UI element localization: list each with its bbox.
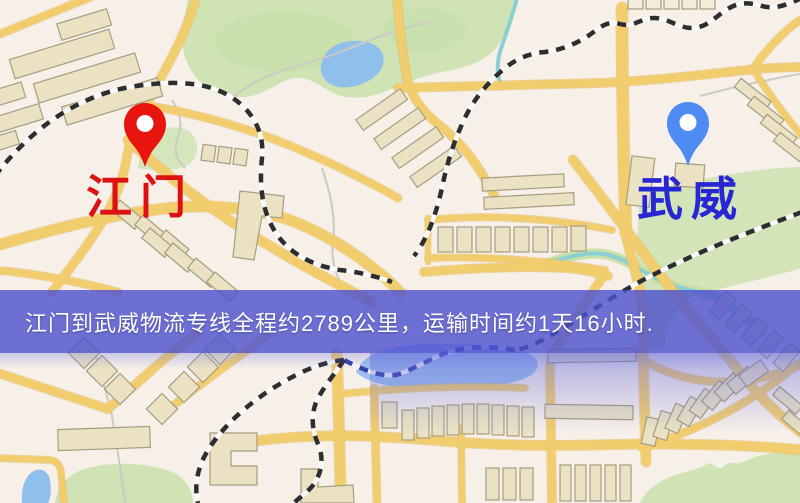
- map-artwork: [0, 0, 800, 503]
- destination-pin-shape: [667, 102, 709, 166]
- origin-label: 江门: [86, 174, 194, 220]
- destination-pin-hole: [680, 114, 697, 131]
- origin-pin[interactable]: [123, 102, 167, 168]
- origin-pin-hole: [137, 115, 154, 132]
- map-view: 江门 武威 江门到武威物流专线全程约2789公里，运输时间约1天16小时.: [0, 0, 800, 503]
- route-info-banner: 江门到武威物流专线全程约2789公里，运输时间约1天16小时.: [0, 290, 800, 353]
- origin-pin-shape: [124, 103, 166, 167]
- route-info-text: 江门到武威物流专线全程约2789公里，运输时间约1天16小时.: [25, 306, 654, 338]
- destination-label: 武威: [637, 176, 745, 222]
- destination-pin[interactable]: [666, 101, 710, 167]
